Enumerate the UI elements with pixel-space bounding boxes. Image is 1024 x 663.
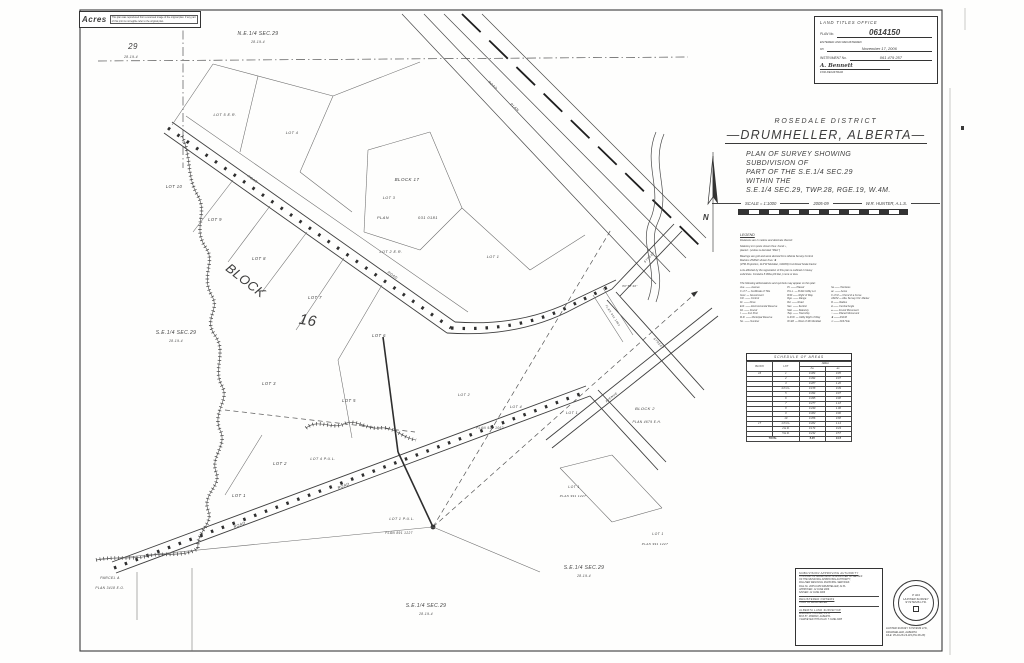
map-label: LOT 1 <box>568 485 579 489</box>
map-label: LOT 1 <box>487 255 500 259</box>
lot-line <box>364 150 368 232</box>
railway-line <box>424 14 670 272</box>
map-label: LOT 1 <box>566 411 578 415</box>
schedule-of-areas: SCHEDULE OF AREAS BLOCK LOT AREA ha ac. … <box>746 353 852 442</box>
lot-line <box>213 64 333 96</box>
creek-hatching <box>96 136 224 560</box>
reproduction-note: This plan was reproduced from a scanned … <box>110 15 198 24</box>
map-label: 16 <box>298 311 318 331</box>
lot-line <box>430 132 462 208</box>
creek-arm-line <box>306 422 416 440</box>
text-line: WITHIN THE <box>746 178 940 187</box>
block-boundary <box>398 452 433 527</box>
map-label: LOT 4 <box>286 131 299 135</box>
map-label: 031 0181 <box>418 215 438 220</box>
lot-line <box>560 455 612 468</box>
reproduction-stamp: Acres This plan was reproduced from a sc… <box>79 11 201 28</box>
approvals-box: SUBDIVISION APPROVING AUTHORITY THIS PLA… <box>795 568 883 646</box>
survey-plan-sheet: N.E.1/4 SEC.2928-19-42928-19-4S.E.1/4 SE… <box>0 0 1024 663</box>
scale-label: SCALE = 1:1000 <box>745 201 776 206</box>
map-label: PLAN 991 1227 <box>642 542 668 546</box>
schedule-title: SCHEDULE OF AREAS <box>746 353 852 361</box>
text-line: SIGNED: 12 JUNE 2006 <box>799 591 879 594</box>
map-label: PLAN 931 1062 <box>476 426 504 430</box>
scale-bar <box>738 209 908 215</box>
street-edge <box>552 316 718 448</box>
lot-line <box>300 96 333 172</box>
land-titles-office-box: LAND TITLES OFFICE PLAN No. 0614150 ENTE… <box>814 16 938 84</box>
text-line: solid lines. Contains 8.09ha (20.0ac.) m… <box>740 273 880 277</box>
map-label: S.E.1/4 SEC.29 <box>564 565 605 571</box>
date-label: on <box>820 47 824 51</box>
plan-number: 0614150 <box>837 28 932 38</box>
map-label: 28-19-4 <box>168 339 183 343</box>
lot-line <box>530 235 585 270</box>
col-block: BLOCK <box>747 362 773 372</box>
lot-line <box>333 62 420 96</box>
map-label: BLOCK 2 <box>635 406 655 411</box>
map-label: ROAD <box>233 521 246 529</box>
lot-line <box>612 455 662 508</box>
road-curve <box>447 289 612 334</box>
map-label: LOT 10 <box>166 184 183 189</box>
section-line <box>98 57 688 61</box>
city-title: —DRUMHELLER, ALBERTA— <box>725 128 928 144</box>
railway-line <box>402 14 656 284</box>
map-label: 29 <box>127 42 138 51</box>
map-label: LOT 1 <box>652 532 663 536</box>
schedule-table: BLOCK LOT AREA ha ac. 1610.3840.9520.394… <box>746 361 852 442</box>
registered-owners-section: REGISTERED OWNERS TOWN OF DRUMHELLER <box>799 598 879 607</box>
text-line: PLAN OF SURVEY SHOWING <box>746 151 940 160</box>
map-label: PLAN 3418 E.O. <box>95 586 124 590</box>
text-line: TOWN OF DRUMHELLER <box>799 601 879 604</box>
lot-line <box>462 208 530 270</box>
map-label: 28-19-4 <box>250 40 265 44</box>
surveyor-stamp-inner: P 324 HUNTER SURVEY SYSTEMS LTD. <box>898 585 934 621</box>
lot-divider <box>225 435 262 495</box>
survey-map: N.E.1/4 SEC.2928-19-42928-19-4S.E.1/4 SE… <box>0 0 1024 663</box>
map-label: LOT 2 <box>273 461 287 466</box>
east-creek <box>654 134 664 302</box>
arrowhead <box>691 291 698 297</box>
map-label: S.E.1/4 SEC.29 <box>406 603 447 609</box>
lot-line <box>612 508 662 522</box>
map-label: LOT 2 E.R. <box>380 250 403 254</box>
map-label: PLAN 891 1227 <box>385 531 413 535</box>
lot-line <box>368 132 430 150</box>
plan-description: PLAN OF SURVEY SHOWINGSUBDIVISION OFPART… <box>746 151 940 195</box>
map-label: ROAD <box>337 482 350 490</box>
land-surveyor-lines: WILLIAM R. HUNTER, A.L.S.BOX 87, MORRIN,… <box>799 612 879 622</box>
easement-line <box>225 410 415 432</box>
instrument-label: INSTRUMENT No. <box>820 56 847 60</box>
scan-speck <box>961 126 964 130</box>
lot-line <box>593 295 623 342</box>
map-label: PLAN <box>377 215 389 220</box>
map-label: LOT 1 P.U.L. <box>389 517 414 521</box>
legend-column-1: Ave. —— AvenueC of T — Certificate of Ti… <box>740 286 777 324</box>
boundary-line <box>96 527 433 560</box>
road-curve <box>455 280 616 323</box>
land-surveyor-section: ALBERTA LAND SURVEYOR WILLIAM R. HUNTER,… <box>799 609 879 623</box>
map-label: PARCEL A <box>100 576 120 580</box>
total-ac: 13.5 <box>825 436 851 441</box>
map-label: LOT 4 <box>510 405 522 409</box>
instrument-number: 061 479 257 <box>850 55 932 61</box>
map-label: LOT 9 <box>208 217 222 222</box>
map-label: STREET <box>652 337 665 351</box>
tie-line <box>433 291 698 527</box>
lot-line <box>172 64 213 125</box>
map-label: LOT 8 <box>252 256 266 261</box>
total-label: TOTAL <box>747 436 800 441</box>
legend: LEGEND Distances are in metres and decim… <box>740 233 940 324</box>
schedule-total-row: TOTAL 5.45 13.5 <box>747 436 852 441</box>
street-edge <box>612 224 674 289</box>
stamp-firm-line2: SYSTEMS LTD. <box>905 601 926 605</box>
text-line: ⊙ —— Drill Hole <box>831 320 869 324</box>
map-label: LOT 5 E.R. <box>214 113 237 117</box>
acres-logo: Acres <box>82 15 107 24</box>
col-lot: LOT <box>773 362 799 372</box>
lot-line <box>364 232 420 250</box>
legend-abbrev-intro: The following abbreviations and symbols … <box>740 282 940 285</box>
lot-line <box>300 172 352 212</box>
text-line: PART OF THE S.E.1/4 SEC.29 <box>746 169 940 178</box>
creek-arm-hatching <box>306 422 416 440</box>
map-label: LOT 4 P.U.L. <box>310 457 335 461</box>
main-road-edge <box>164 133 447 333</box>
map-label: PLAN 931 1062 <box>604 304 621 327</box>
approving-authority-lines: THIS PLAN OF SUBDIVISION IS APPROVED ON … <box>799 575 879 594</box>
map-label: PLAN 991 1227 <box>560 494 586 498</box>
approving-authority-section: SUBDIVISION APPROVING AUTHORITY THIS PLA… <box>799 572 879 597</box>
for-registrar-label: FOR REGISTRAR <box>820 70 932 74</box>
map-label: LOT 5 <box>342 398 356 403</box>
tie-line <box>433 228 612 527</box>
map-label: LOT 3 <box>262 381 276 386</box>
lot-line <box>240 76 258 152</box>
registered-owners-lines: TOWN OF DRUMHELLER <box>799 601 879 604</box>
map-label: ROAD <box>487 80 498 91</box>
map-label: LOT 7 <box>308 295 322 300</box>
map-label: PLAN <box>509 102 519 112</box>
title-block: ROSEDALE DISTRICT —DRUMHELLER, ALBERTA— … <box>712 118 940 215</box>
district-title: ROSEDALE DISTRICT <box>712 118 940 125</box>
text-line: E.R. —— Environmental Reserve <box>740 305 777 309</box>
boundary-line <box>433 527 540 572</box>
map-label: BLOCK <box>223 260 269 301</box>
registration-date: November 17, 2006 <box>827 46 932 52</box>
reserve-strip-line <box>186 116 468 312</box>
legend-column-2: Pl. —— PlacedP.U.L. — Public Utility Lot… <box>787 286 821 324</box>
lot-divider <box>193 180 233 232</box>
lot-divider <box>228 206 270 262</box>
map-label: 28-19-4 <box>576 574 591 578</box>
text-line: S.E.1/4 SEC.29, TWP.28, RGE.19, W.4M. <box>746 187 940 196</box>
map-label: 89°58'40" <box>622 284 638 288</box>
plan-number-label: PLAN No. <box>820 32 834 36</box>
block-boundary <box>383 337 398 452</box>
lot-divider <box>338 285 382 360</box>
legend-notes: Distances are in metres and decimals the… <box>740 239 880 277</box>
bottom-road-monuments <box>114 391 588 568</box>
surveyor-name: W.R. HUNTER, A.L.S. <box>866 201 907 206</box>
map-label: 28-19-4 <box>418 612 433 616</box>
bottom-road-edge <box>112 386 586 562</box>
entered-registered-label: ENTERED AND REGISTERED <box>820 40 932 44</box>
map-label: PLAN 4679 E.H. <box>633 420 662 424</box>
lot-divider <box>262 232 307 292</box>
map-label: BLOCK 17 <box>395 177 420 182</box>
text-line: No. —— Number <box>740 320 777 324</box>
creek-line <box>96 136 224 560</box>
total-ha: 5.45 <box>799 436 825 441</box>
text-line: SUBDIVISION OF <box>746 160 940 169</box>
railway-centerline <box>462 14 700 246</box>
plan-year: 2005-09 <box>813 201 828 206</box>
map-label: N <box>703 213 709 222</box>
main-road-edge <box>172 122 455 322</box>
map-label: N.E.1/4 SEC.29 <box>238 31 279 37</box>
stamp-seal-square <box>913 606 919 612</box>
legend-heading: LEGEND <box>740 233 940 237</box>
surveyor-stamp: P 324 HUNTER SURVEY SYSTEMS LTD. <box>893 580 939 626</box>
street-edge <box>546 308 712 440</box>
text-line: W.4M. — West of 4th Meridian <box>787 320 821 324</box>
map-label: LOT 1 <box>232 493 246 498</box>
text-line: I SURVEYED THIS PLAN: 7 JUNE 2005 <box>799 618 879 621</box>
map-label: 28-19-4 <box>123 55 138 59</box>
legend-column-3: ha —— Hectaresac. —— AcresC of M — Chord… <box>831 286 869 324</box>
scale-row: SCALE = 1:1000 2005-09 W.R. HUNTER, A.L.… <box>712 201 940 206</box>
registrar-signature: A. Bennett <box>820 63 890 70</box>
railway-line <box>482 14 706 238</box>
map-label: LOT 3 <box>383 196 396 200</box>
firm-file: FILE: 05-29-28-19-W4 (PH:06-28) <box>886 634 940 638</box>
lot-line <box>603 288 633 335</box>
lto-office-label: LAND TITLES OFFICE <box>820 20 932 25</box>
road-curve-monuments <box>451 284 614 328</box>
map-label: LOT 2 <box>458 393 470 397</box>
map-label: ROAD <box>247 174 259 184</box>
map-label: S.E.1/4 SEC.29 <box>156 330 197 336</box>
map-label: LOT 6 <box>372 333 386 338</box>
firm-block: HUNTER SURVEY SYSTEMS LTD., DRUMHELLER, … <box>886 627 940 638</box>
